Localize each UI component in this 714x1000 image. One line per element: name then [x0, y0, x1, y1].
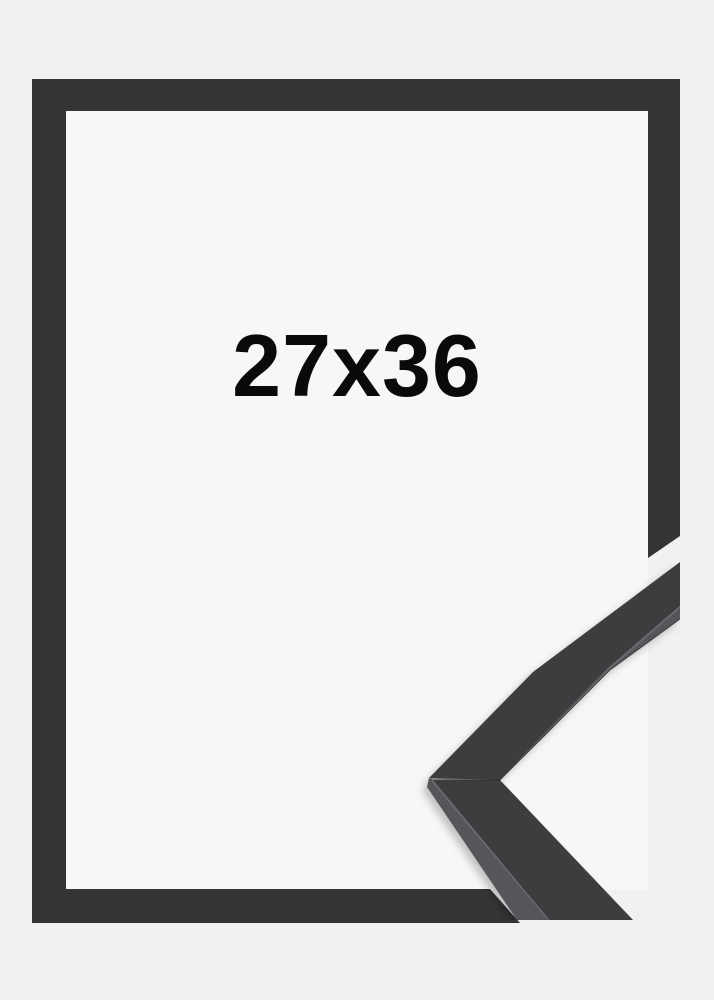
frame-border-bottom	[32, 889, 520, 923]
frame-border-top	[32, 79, 680, 111]
size-label: 27x36	[66, 322, 648, 410]
frame-border-left	[32, 79, 66, 923]
frame-opening	[66, 111, 648, 889]
frame-illustration	[0, 0, 714, 1000]
frame-product-photo: 27x36	[0, 0, 714, 1000]
frame-border-right	[648, 79, 680, 558]
